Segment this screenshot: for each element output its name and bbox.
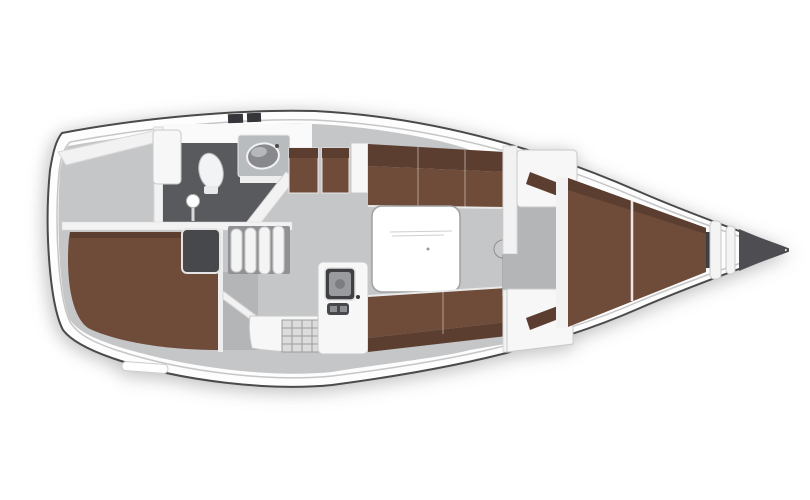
stove-knob — [356, 295, 360, 299]
step-3 — [259, 227, 270, 274]
deck-hatch-1 — [228, 114, 243, 124]
step-1 — [231, 229, 242, 272]
port-corner-seat-2-back — [322, 148, 349, 158]
cabin-doorway — [503, 254, 517, 290]
stove-control-right — [340, 306, 347, 312]
bow-dark-gap — [706, 232, 710, 268]
floor-plan-canvas — [0, 0, 810, 500]
vberth-footboard — [556, 176, 568, 329]
step-2 — [245, 228, 256, 273]
port-settee-seat — [368, 166, 505, 208]
bow-bulkhead-bar-2 — [726, 226, 735, 274]
anchor-locker — [739, 229, 785, 271]
wardrobe — [182, 229, 220, 273]
stove-control-left — [330, 306, 337, 312]
saloon-table — [372, 206, 460, 292]
stove-burner — [335, 279, 345, 289]
port-corner-seat-1-back — [289, 148, 318, 158]
deck-hatch-2 — [247, 113, 261, 122]
saloon-cabinet — [351, 143, 368, 193]
yacht-floor-plan — [0, 0, 810, 500]
step-4 — [273, 226, 284, 274]
bow-bulkhead-bar-1 — [710, 221, 721, 279]
faucet — [275, 144, 279, 148]
heads-locker — [153, 130, 181, 184]
table-center-dot — [427, 248, 430, 251]
bulkhead-port — [503, 146, 517, 254]
toilet-base — [204, 186, 218, 194]
shower-head — [187, 195, 200, 208]
